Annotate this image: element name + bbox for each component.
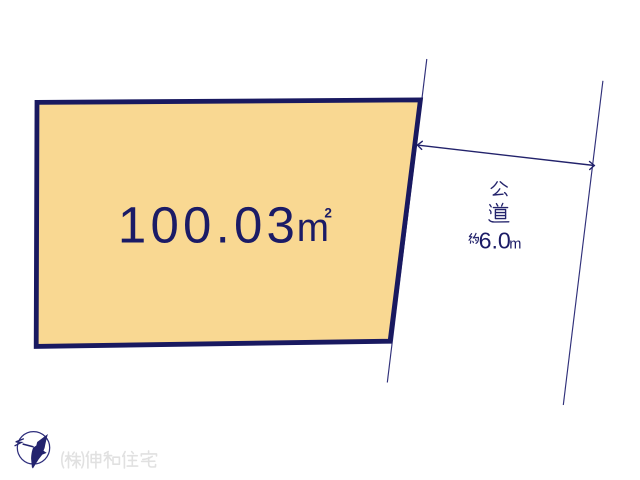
svg-text:100.03: 100.03 bbox=[118, 197, 299, 254]
svg-text:6.0: 6.0 bbox=[479, 227, 511, 253]
svg-text:m: m bbox=[509, 236, 521, 252]
svg-text:2: 2 bbox=[324, 205, 332, 220]
